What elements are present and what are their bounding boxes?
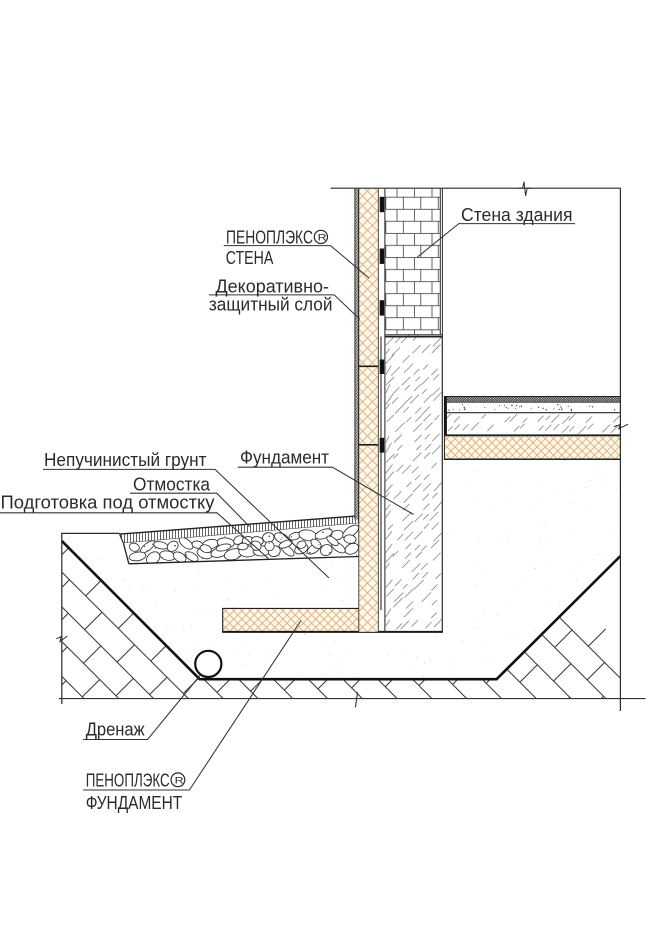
svg-text:Непучинистый грунт: Непучинистый грунт [44, 450, 207, 470]
svg-text:R: R [175, 776, 184, 787]
svg-text:R: R [318, 233, 327, 244]
svg-text:ПЕНОПЛЭКС: ПЕНОПЛЭКС [226, 227, 313, 247]
svg-text:Стена здания: Стена здания [461, 205, 573, 225]
svg-text:Дренаж: Дренаж [86, 720, 145, 740]
svg-text:ФУНДАМЕНТ: ФУНДАМЕНТ [86, 793, 183, 813]
svg-text:СТЕНА: СТЕНА [226, 248, 274, 268]
svg-text:Декоративно-: Декоративно- [216, 277, 330, 297]
svg-text:Фундамент: Фундамент [240, 447, 329, 467]
svg-text:Подготовка под отмостку: Подготовка под отмостку [1, 492, 215, 512]
svg-text:ПЕНОПЛЭКС: ПЕНОПЛЭКС [86, 770, 170, 790]
svg-text:защитный слой: защитный слой [209, 295, 333, 315]
